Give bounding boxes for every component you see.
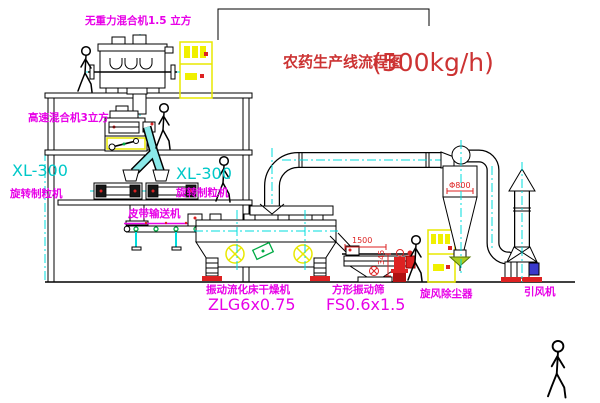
dim-cyclone-diameter: Φ800 [449, 181, 471, 190]
label-granulator-right: 旋转制粒机 [175, 186, 229, 199]
model-granulator-left: XL-300 [12, 161, 68, 180]
fan-motor [529, 263, 539, 275]
label-fan: 引风机 [524, 285, 556, 298]
diagram-capacity: (500kg/h) [372, 48, 494, 77]
label-granulator-left: 旋转制粒机 [9, 187, 63, 200]
label-belt-conveyor: 皮带输送机 [127, 207, 181, 220]
flow-diagram-canvas: 农药生产线流程图 (500kg/h) 无重力混合机1.5 立方 高速混合机3立方… [0, 0, 600, 403]
granulator-hopper [153, 170, 169, 181]
label-gravity-mixer: 无重力混合机1.5 立方 [84, 14, 192, 27]
control-cabinet-right [428, 230, 455, 282]
floor-slab-low [58, 200, 252, 205]
fluid-bed-dryer [188, 204, 338, 281]
dim-sieve-height: 345 [377, 250, 386, 265]
pesticide-line-drawing: 农药生产线流程图 (500kg/h) 无重力混合机1.5 立方 高速混合机3立方… [0, 0, 600, 403]
model-sieve: FS0.6x1.5 [326, 295, 405, 314]
control-cabinet-top [180, 42, 212, 98]
granulator-hopper [123, 170, 139, 181]
exhaust-duct [272, 148, 452, 212]
label-high-speed-mixer: 高速混合机3立方 [28, 111, 109, 124]
dryer-hood [250, 206, 333, 215]
granulator-left [90, 170, 146, 199]
floor-slab-top [45, 93, 252, 98]
label-cyclone: 旋风除尘器 [419, 287, 473, 300]
model-granulator-right: XL-300 [176, 164, 232, 183]
model-dryer: ZLG6x0.75 [208, 295, 296, 314]
person-figure [548, 341, 566, 398]
sieve-base [358, 277, 392, 282]
person-figure [156, 104, 170, 149]
mixer-discharge [127, 88, 147, 94]
rotary-valve [450, 257, 470, 266]
leader-line [218, 9, 429, 40]
dim-sieve-length: 1500 [352, 236, 372, 245]
